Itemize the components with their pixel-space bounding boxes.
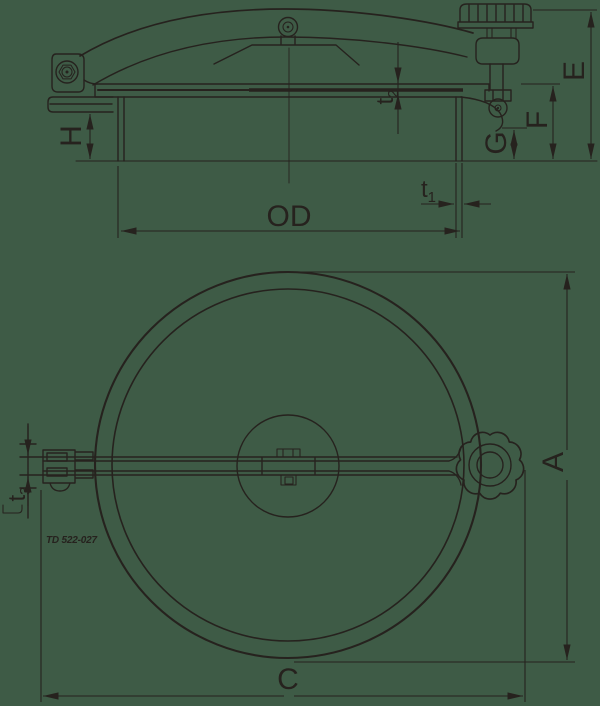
- dim-label-c: C: [277, 663, 299, 696]
- dim-label-e: E: [558, 61, 591, 81]
- dim-A: A: [537, 274, 570, 660]
- dim-label-od: OD: [267, 200, 312, 233]
- hinge-clamp-bracket: [3, 505, 22, 513]
- dim-OD: OD: [121, 200, 460, 233]
- lid-dome-outer-arc: [80, 9, 473, 56]
- dim-F: F: [521, 86, 554, 159]
- center-boss-platform: [214, 36, 359, 65]
- latch-hook: [461, 97, 503, 131]
- dim-E: E: [558, 12, 591, 159]
- center-slot-detail: [277, 449, 300, 485]
- dim-t3: t3: [4, 426, 34, 506]
- manway-outer-circle: [95, 272, 481, 658]
- technical-drawing-manway: E F G H OD t1: [0, 0, 600, 706]
- part-number-note: TD 522-027: [46, 535, 97, 546]
- swing-bolt-housing: [476, 38, 519, 64]
- dim-H: H: [55, 114, 90, 159]
- dim-label-t3-sub: 3: [17, 486, 34, 494]
- neck-shell-walls: [118, 97, 462, 161]
- dim-label-t2-sub: 2: [385, 89, 402, 97]
- dim-label-t1: t1: [421, 176, 436, 206]
- crown-knob-side: [458, 4, 533, 28]
- drawing-canvas: E F G H OD t1: [0, 0, 600, 706]
- dim-label-f: F: [521, 111, 554, 129]
- dim-C: C: [43, 663, 523, 696]
- plan-extension-lines: [41, 272, 575, 702]
- dim-G: G: [480, 130, 514, 159]
- center-disc: [237, 415, 339, 517]
- side-view: E F G H OD t1: [48, 4, 597, 238]
- knob-neck: [487, 28, 516, 38]
- hand-knob-scallop: [456, 432, 523, 499]
- lid-dome-inner-arc: [84, 37, 467, 85]
- swing-bolt-stem: [485, 64, 511, 101]
- dim-label-a: A: [537, 452, 570, 472]
- hand-knob-middle-circle: [469, 444, 511, 486]
- plan-view: A C t3 TD 522-027: [3, 272, 575, 702]
- dim-label-t1-sub: 1: [428, 189, 436, 206]
- dim-label-g: G: [480, 131, 513, 154]
- hinge-bolt-dot: [66, 71, 69, 74]
- manway-inner-circle: [112, 289, 464, 641]
- dim-label-h: H: [55, 125, 88, 147]
- dim-label-t3: t3: [4, 486, 34, 501]
- flange-lip-left: [48, 97, 113, 112]
- vent-nut-dot: [287, 26, 290, 29]
